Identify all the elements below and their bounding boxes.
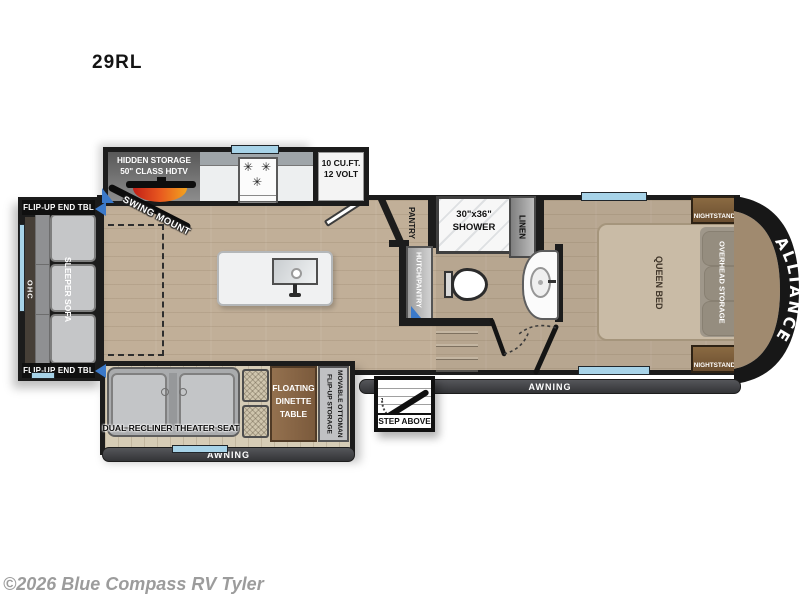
wall (536, 195, 544, 255)
awning-left: AWNING (102, 447, 355, 462)
ohc-label: OHC (26, 280, 35, 300)
slide-travel-outline (98, 224, 164, 356)
flip-up-end-table-top: FLIP-UP END TBL (22, 200, 95, 215)
island-faucet (289, 293, 301, 297)
brand-text: ALLIANCE (771, 234, 800, 346)
hutch-pantry-label: HUTCH/PANTRY (408, 250, 430, 310)
nightstand-top: NIGHTSTAND (691, 196, 738, 224)
burner-icon: ✳ (252, 176, 262, 188)
window (19, 224, 25, 312)
seat-console (169, 373, 177, 429)
overhead-cabinet: OHC (25, 217, 35, 363)
sofa-backrest (35, 214, 50, 364)
window (31, 372, 55, 379)
window (231, 145, 279, 154)
step-tread (378, 388, 431, 389)
nightstand-label: NIGHTSTAND (693, 362, 736, 369)
linen-label: LINEN (511, 200, 533, 254)
cupholder (161, 388, 169, 396)
cupholder (179, 388, 187, 396)
nightstand-label: NIGHTSTAND (693, 213, 736, 220)
wall (428, 196, 436, 248)
window (172, 445, 228, 453)
dinette-chair (242, 369, 269, 402)
wall (399, 318, 493, 326)
step-above-label: STEP ABOVE (378, 413, 431, 428)
recliner-seat (179, 373, 235, 429)
interior-steps (436, 318, 478, 372)
slide-arrow-icon (95, 364, 106, 378)
tv-swivel-icon (102, 188, 114, 203)
theater-seat-label: DUAL RECLINER THEATER SEAT (99, 423, 243, 433)
bathroom-faucet (548, 280, 556, 283)
stove-drawer (240, 195, 276, 203)
tv (126, 181, 196, 188)
window (581, 192, 647, 201)
slide-arrow-icon (411, 306, 421, 318)
ottoman-label: MOVABLE OTTOMAN FLIP-UP STORAGE (319, 368, 348, 440)
overhead-storage-label: OVERHEAD STORAGE (713, 231, 731, 333)
window (578, 366, 650, 375)
slide-arrow-icon (95, 202, 106, 216)
wall (399, 246, 406, 326)
nightstand-bottom: NIGHTSTAND (691, 345, 738, 373)
pantry-label: PANTRY (404, 201, 419, 245)
sleeper-sofa-label: SLEEPER SOFA (58, 242, 78, 338)
burner-icon: ✳ (261, 161, 271, 173)
queen-bed-label: QUEEN BED (650, 247, 668, 319)
sink-drain (538, 280, 543, 285)
dinette-chair (242, 405, 269, 438)
burner-icon: ✳ (243, 161, 253, 173)
refrigerator-label: 10 CU.FT. 12 VOLT (318, 158, 364, 180)
shower-label: 30"x36" SHOWER (436, 208, 512, 235)
floorplan-model-title: 29RL (92, 52, 142, 74)
dinette-table-label: FLOATING DINETTE TABLE (270, 382, 317, 421)
dealer-watermark: ©2026 Blue Compass RV Tyler (3, 574, 264, 595)
hidden-storage-label: HIDDEN STORAGE 50" CLASS HDTV (108, 155, 200, 177)
recliner-seat (111, 373, 167, 429)
sink-drain (291, 268, 302, 279)
floorplan-canvas: 29RL FLIP-UP END TBL FLIP-UP END TBL OHC… (0, 0, 800, 600)
